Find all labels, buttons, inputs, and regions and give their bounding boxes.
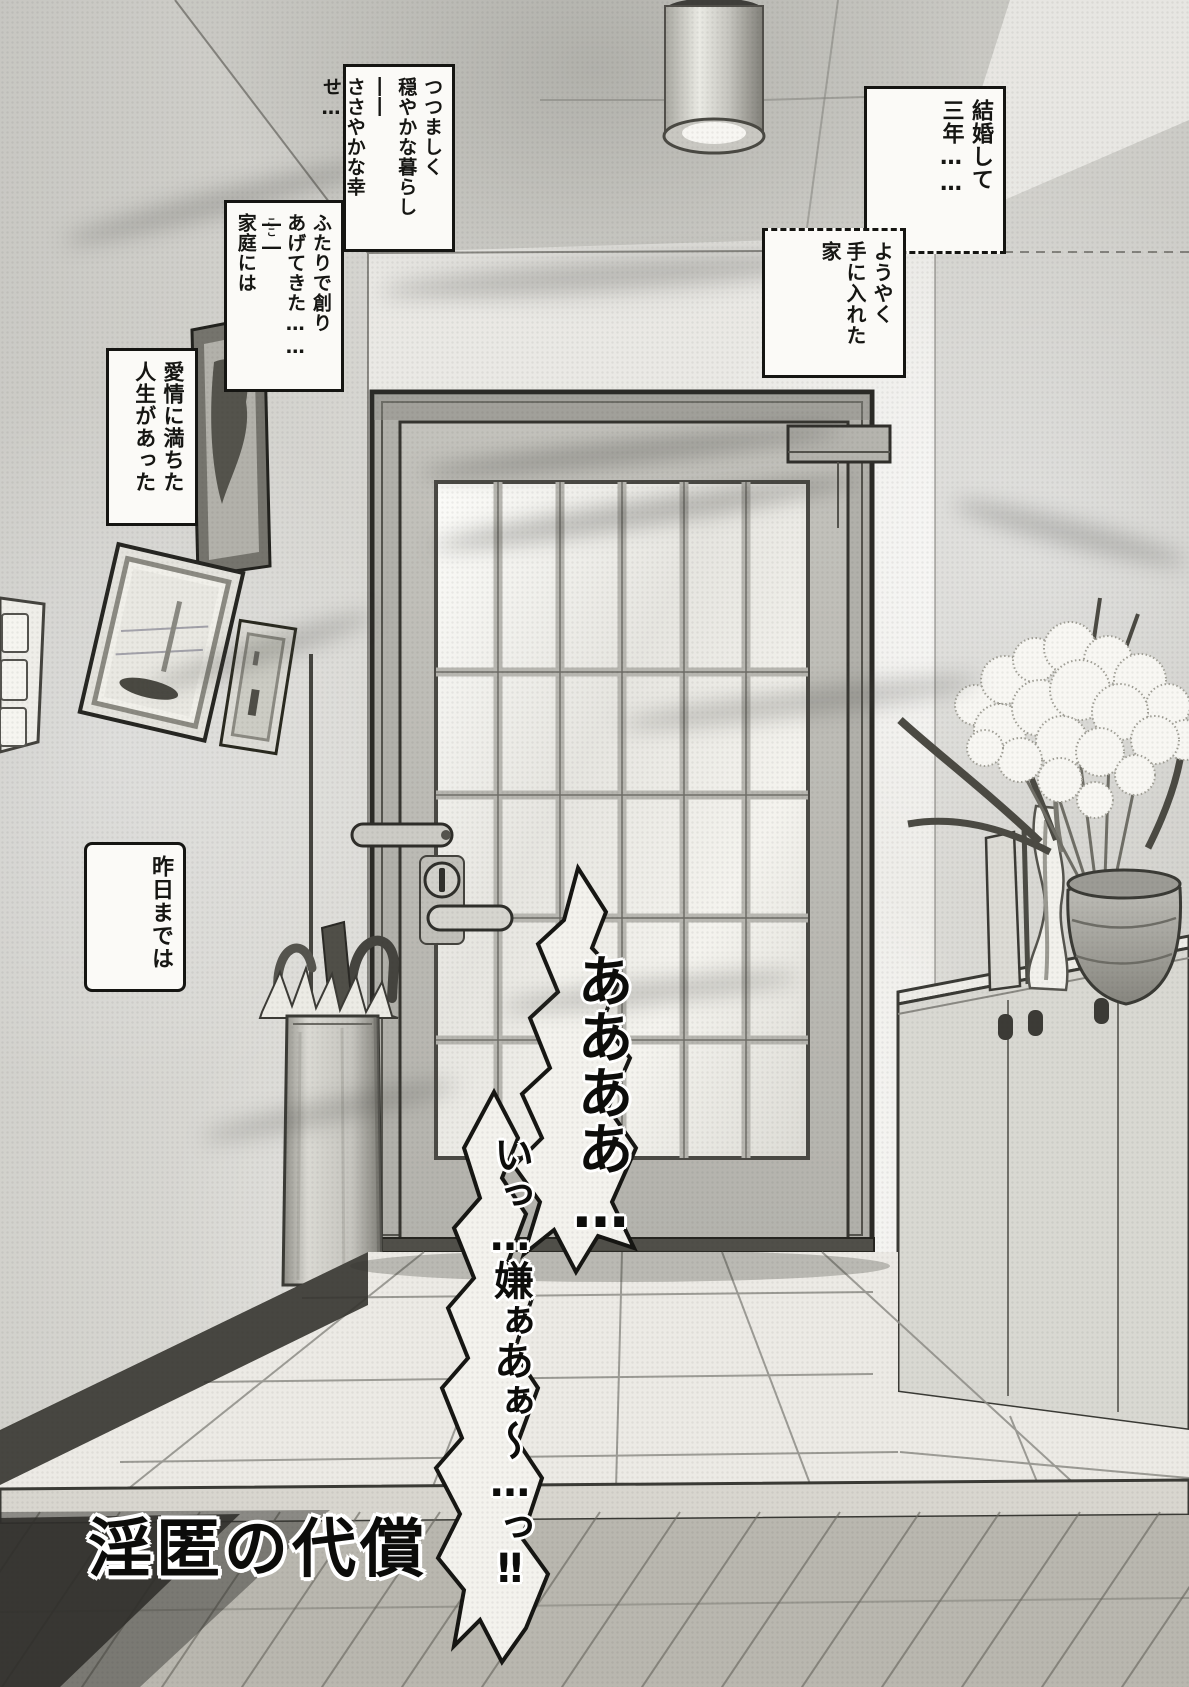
scream-text-aaaa: ああああ… <box>552 952 628 1272</box>
narration-line: あげてきた……―― <box>259 213 307 379</box>
narration-line: 人生があった <box>132 361 158 513</box>
narration-box-life-of-love: 愛情に満ちた 人生があった <box>106 348 198 526</box>
narration-line: つつましく <box>419 77 443 239</box>
narration-line: 愛情に満ちた <box>160 361 186 513</box>
narration-line: 昨日までは <box>147 855 175 979</box>
flower-arrangement <box>900 598 1189 1004</box>
narration-line: 穏やかな暮らし <box>394 77 418 239</box>
picture-frame-seascape <box>80 544 243 740</box>
chapter-title: 淫匿の代償 <box>88 1498 428 1590</box>
scream-text-no: いっ…嫌ぁあぁ～…っ‼ <box>466 1134 530 1664</box>
narration-box-until-yesterday: 昨日までは <box>84 842 186 992</box>
narration-line: 手に入れた家 <box>817 241 867 365</box>
cabinet-pull <box>1028 1010 1043 1036</box>
leaning-photo-frames <box>986 828 1028 990</box>
narration-line: 三年…… <box>937 99 965 241</box>
cabinet-pull <box>1094 998 1109 1024</box>
flowers <box>955 622 1189 818</box>
narration-line: 結婚して <box>967 99 995 241</box>
light-switch <box>0 598 44 752</box>
picture-frame-small <box>221 620 296 753</box>
ceiling-light <box>664 0 764 153</box>
narration-line: ようやく <box>869 241 894 365</box>
narration-dash: ―― <box>368 77 392 239</box>
narration-box-modest-life: つつましく 穏やかな暮らし ―― ささやかな幸せ… <box>343 64 455 252</box>
narration-box-built-together: ふたりで創り あげてきた……―― 家庭には ここ <box>224 200 344 392</box>
cabinet-pull <box>998 1014 1013 1040</box>
furigana: ここ <box>262 217 277 237</box>
narration-line: ふたりで創り <box>308 213 332 379</box>
narration-box-finally-our-house: ようやく 手に入れた家 <box>762 228 906 378</box>
manga-page: つつましく 穏やかな暮らし ―― ささやかな幸せ… ふたりで創り あげてきた……… <box>0 0 1189 1687</box>
narration-line: 家庭には <box>233 213 257 379</box>
shoe-cabinet <box>898 936 1189 1444</box>
